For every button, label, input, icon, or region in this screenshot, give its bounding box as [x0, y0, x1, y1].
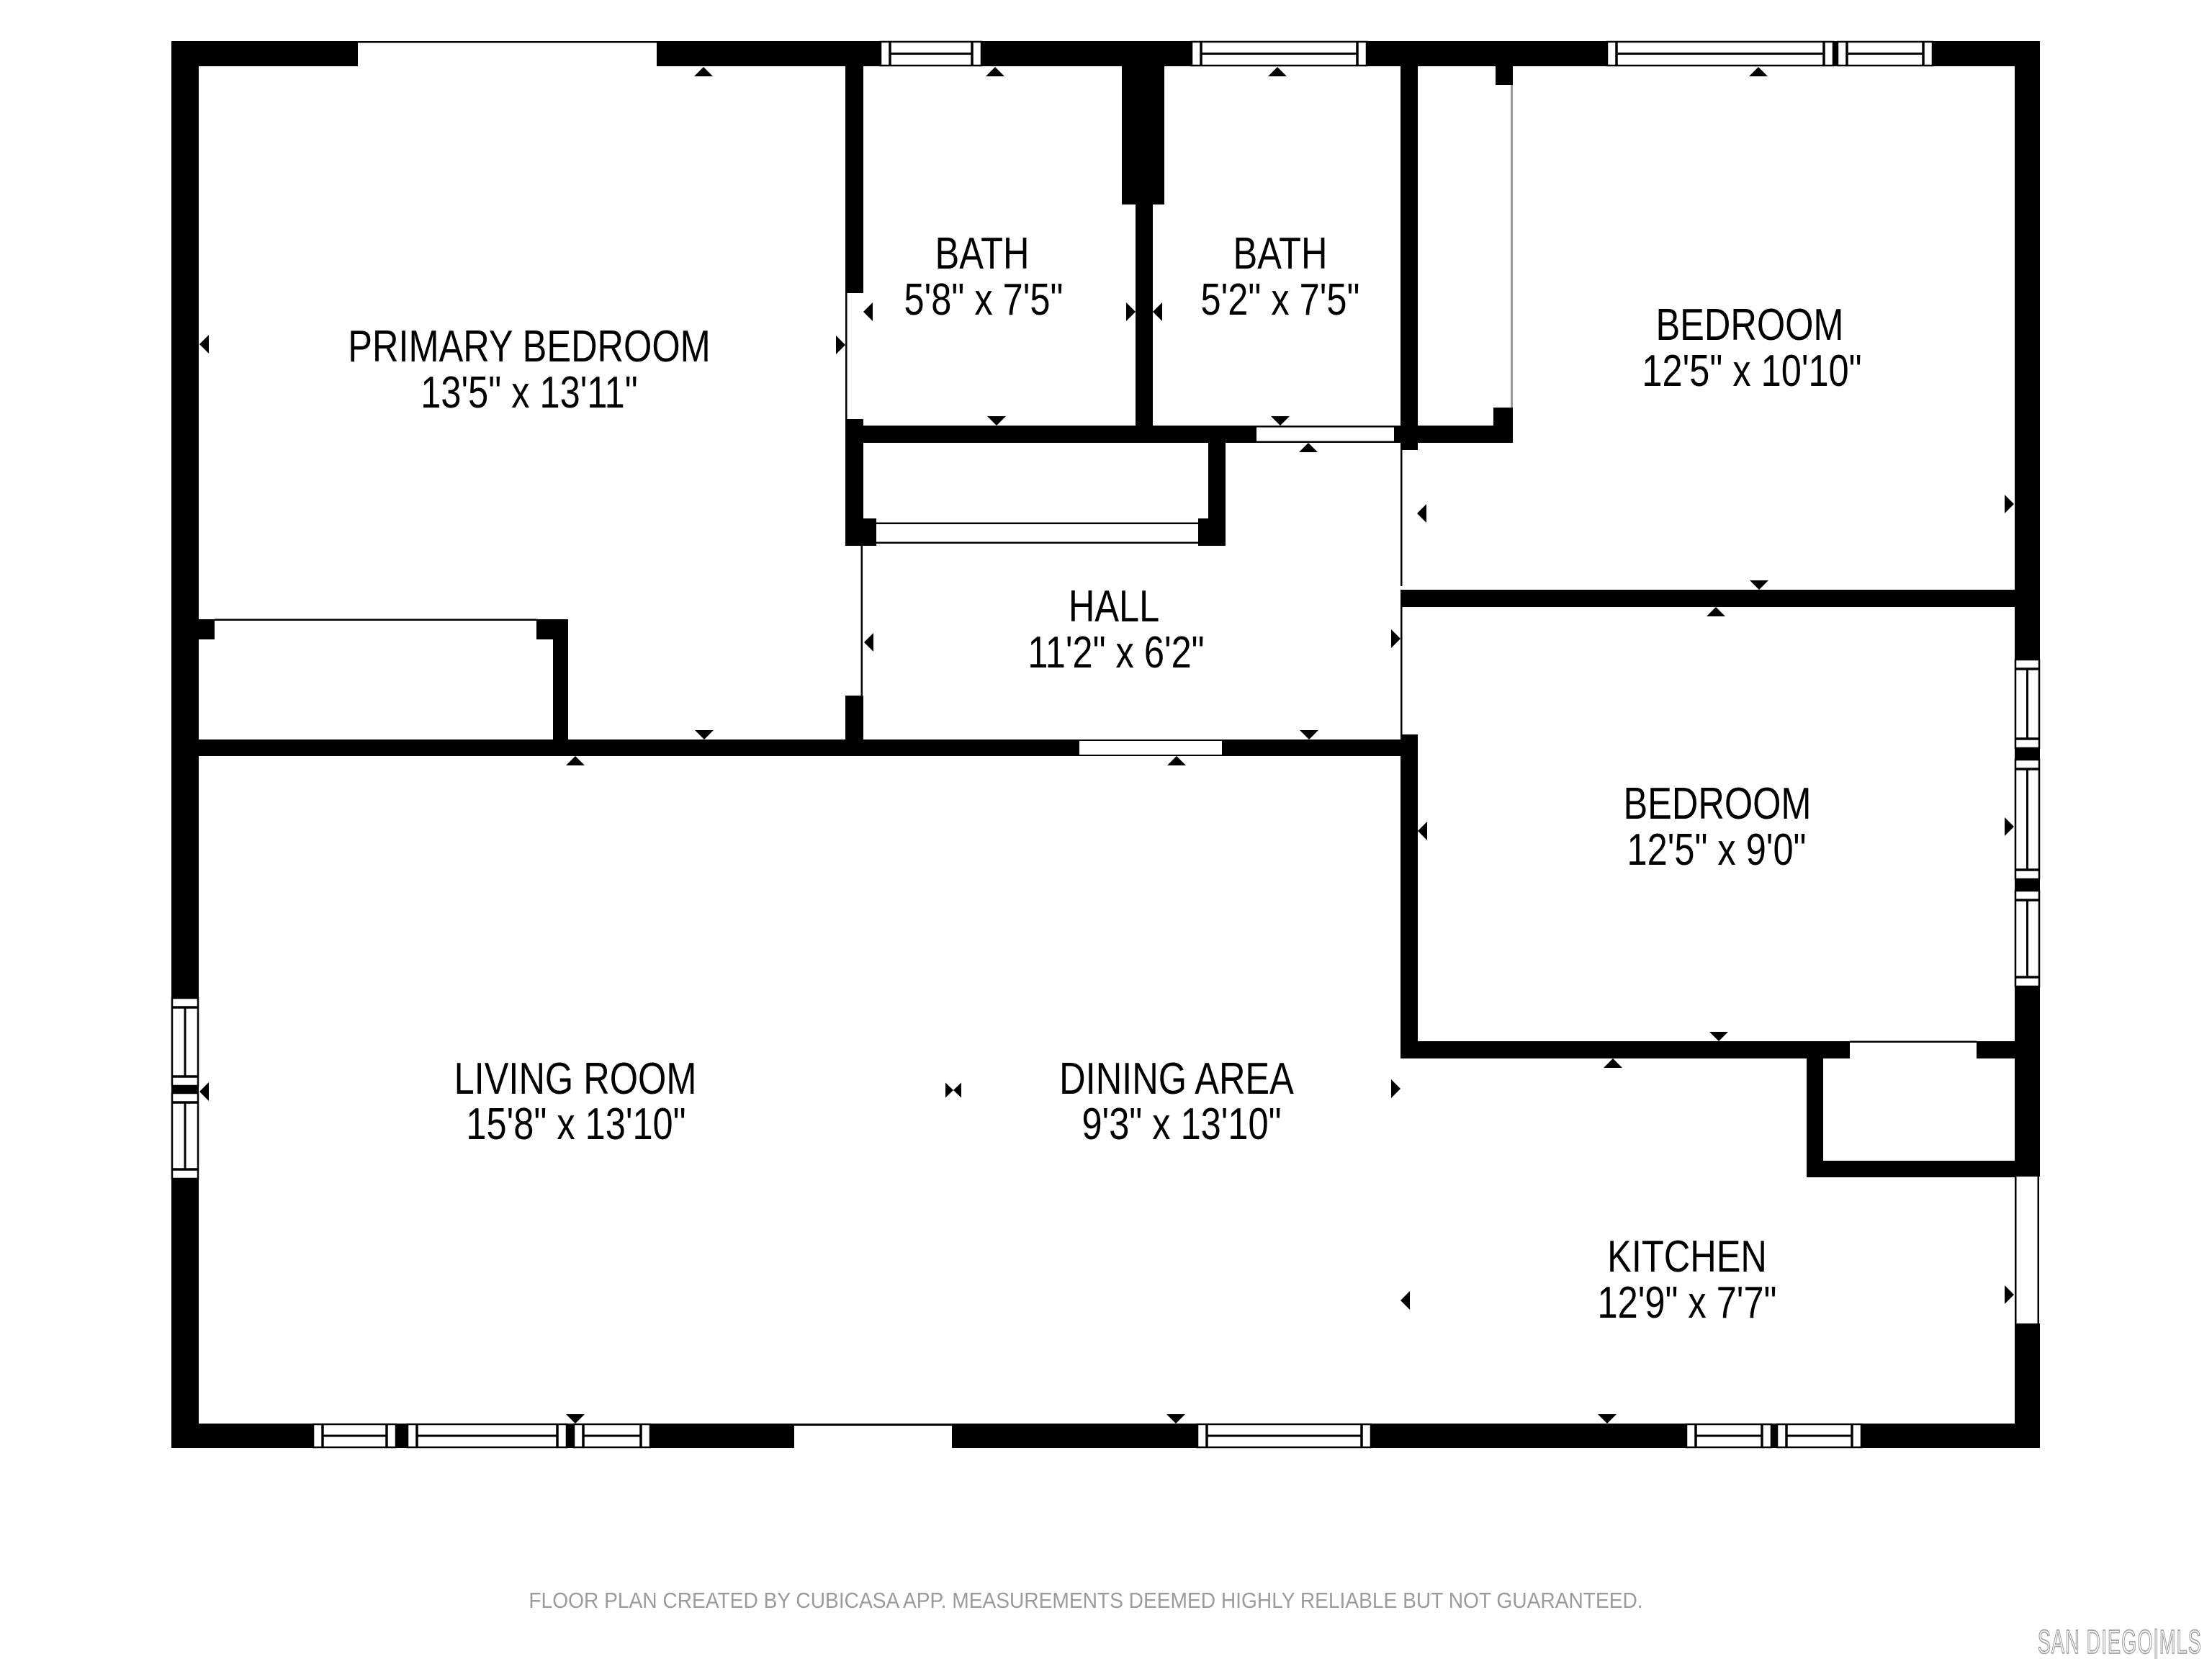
svg-text:12'9" x 7'7": 12'9" x 7'7"	[1598, 1277, 1777, 1327]
svg-text:SAN DIEGO|MLS: SAN DIEGO|MLS	[2038, 1624, 2202, 1659]
svg-text:BATH: BATH	[935, 228, 1029, 278]
svg-text:FLOOR PLAN CREATED BY CUBICASA: FLOOR PLAN CREATED BY CUBICASA APP. MEAS…	[529, 1588, 1642, 1614]
svg-text:BEDROOM: BEDROOM	[1623, 778, 1811, 828]
svg-text:HALL: HALL	[1069, 581, 1159, 631]
svg-text:BEDROOM: BEDROOM	[1655, 300, 1843, 349]
svg-text:5'2" x 7'5": 5'2" x 7'5"	[1201, 274, 1360, 324]
svg-text:BATH: BATH	[1233, 228, 1327, 278]
svg-text:PRIMARY BEDROOM: PRIMARY BEDROOM	[348, 321, 710, 371]
svg-text:12'5" x 9'0": 12'5" x 9'0"	[1627, 824, 1807, 874]
svg-text:LIVING ROOM: LIVING ROOM	[454, 1053, 697, 1103]
svg-text:9'3" x 13'10": 9'3" x 13'10"	[1082, 1099, 1281, 1148]
svg-text:KITCHEN: KITCHEN	[1607, 1231, 1767, 1281]
svg-text:5'8" x 7'5": 5'8" x 7'5"	[904, 274, 1064, 324]
svg-text:12'5" x 10'10": 12'5" x 10'10"	[1642, 346, 1861, 395]
svg-text:11'2" x 6'2": 11'2" x 6'2"	[1028, 627, 1204, 677]
svg-text:15'8" x 13'10": 15'8" x 13'10"	[466, 1099, 685, 1148]
svg-text:13'5" x 13'11": 13'5" x 13'11"	[421, 367, 637, 417]
svg-text:DINING AREA: DINING AREA	[1059, 1053, 1294, 1103]
